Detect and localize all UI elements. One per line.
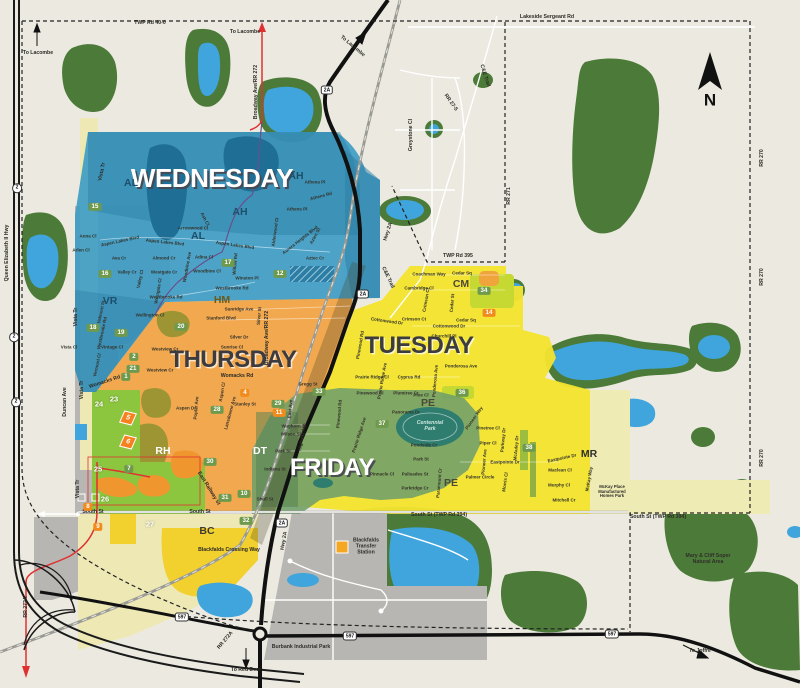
place-label-burbank-industrial-park: Burbank Industrial Park bbox=[272, 645, 331, 651]
badge-33: 33 bbox=[313, 388, 326, 396]
badge-8: 8 bbox=[83, 503, 92, 511]
street-label-sunridge-ave: Sunridge Ave bbox=[225, 306, 254, 311]
area-code-ah: AH bbox=[232, 207, 247, 219]
street-label-cambridge-cl: Cambridge Cl bbox=[404, 285, 433, 290]
street-label-alderwood-cl: Alderwood Cl bbox=[270, 217, 279, 246]
area-code-rh: RH bbox=[155, 446, 170, 458]
road-label-to-lacombe: To Lacombe bbox=[230, 30, 260, 36]
street-label-pine-cl: Pine Cl bbox=[413, 392, 428, 397]
street-label-indiana-st: Indiana St bbox=[264, 466, 286, 471]
road-label-south-st: South St bbox=[189, 510, 210, 516]
road-label-twp-rd-40-0: TWP Rd 40-0 bbox=[134, 21, 166, 27]
street-label-wilson-st: Wilson St bbox=[281, 431, 301, 436]
badge-31: 31 bbox=[219, 494, 232, 502]
badge-34: 34 bbox=[478, 287, 491, 295]
road-label-vista-tr: Vista Tr bbox=[98, 162, 108, 181]
street-label-mitchell-cr: Mitchell Cr bbox=[552, 497, 575, 502]
street-label-aspen-lakes-blvd: Aspen Lakes Blvd bbox=[101, 235, 140, 248]
road-label-hwy-2a: Hwy 2A bbox=[281, 531, 290, 550]
place-label-blackfalds-transfer-station: Blackfalds Transfer Station bbox=[353, 538, 379, 555]
road-label-queen-elizabeth-ii-hwy: Queen Elizabeth II Hwy bbox=[5, 225, 11, 282]
badge-21: 21 bbox=[127, 365, 140, 373]
shield-597: 597 bbox=[605, 630, 619, 639]
street-label-cedar-st: Cedar St bbox=[449, 294, 456, 313]
street-label-prairie-ridge-ave: Prairie Ridge Ave bbox=[376, 362, 387, 399]
marker-5: 5 bbox=[119, 410, 137, 425]
badge-23: 23 bbox=[107, 394, 121, 404]
street-label-arlen-cl: Arlen Cl bbox=[72, 247, 89, 252]
street-label-poplar-ave: Poplar Ave bbox=[192, 396, 199, 420]
street-label-mcauley-dr: McAuley Dr bbox=[512, 435, 519, 460]
shield-2: 2 bbox=[12, 183, 22, 193]
street-label-athens-rd: Athens Rd bbox=[309, 191, 332, 202]
shield-597: 597 bbox=[343, 632, 357, 641]
street-label-parkway-dr: Parkway Dr bbox=[499, 428, 506, 453]
street-label-pioneer-way: Pioneer Way bbox=[464, 406, 484, 431]
road-label-duncan-ave: Duncan Ave bbox=[63, 387, 69, 417]
street-label-winston-pl: Winston Pl bbox=[235, 275, 258, 280]
street-label-valley-cr: Valley Cr bbox=[117, 269, 136, 274]
road-label-vista-tr: Vista Tr bbox=[76, 480, 82, 499]
street-label-almond-cr: Almond Cr bbox=[153, 255, 176, 260]
shield-2: 2 bbox=[9, 332, 19, 342]
road-label-south-st: South St bbox=[82, 510, 103, 516]
street-label-vista-cl: Vista Cl bbox=[61, 344, 77, 349]
area-code-pe: PE bbox=[421, 398, 435, 410]
road-label-to-red-deer: To Red Deer bbox=[231, 668, 261, 674]
road-label-rr-270: RR 270 bbox=[760, 149, 766, 167]
area-code-pe: PE bbox=[444, 478, 458, 490]
area-code-vr: VR bbox=[103, 296, 118, 308]
street-label-park-st: Park St bbox=[413, 456, 429, 461]
street-label-westbrooke-rd: Westbrooke Rd bbox=[96, 316, 108, 349]
badge-16: 16 bbox=[99, 270, 112, 278]
street-label-lansdowne-ave: Lansdowne Ave bbox=[223, 396, 237, 430]
road-label-rr-270: RR 270 bbox=[760, 268, 766, 286]
road-label-rr-27-5: RR 27-5 bbox=[442, 93, 458, 112]
street-label-crimson-ct: Crimson Ct bbox=[402, 316, 426, 321]
street-label-westgate-cl: Westgate Cl bbox=[153, 278, 162, 304]
road-label-to-lacombe: To Lacombe bbox=[339, 35, 366, 59]
street-label-pinetree-cl: Pinetree Cl bbox=[476, 425, 500, 430]
marker-6: 6 bbox=[119, 434, 137, 449]
road-label-vista-tr: Vista Tr bbox=[80, 381, 86, 400]
badge-30: 30 bbox=[204, 458, 217, 466]
street-label-cottonwood-dr: Cottonwood Dr bbox=[371, 316, 404, 326]
street-label-maclean-cl: Maclean Cl bbox=[548, 467, 572, 472]
street-label-westbrooke-rd: Westbrooke Rd bbox=[216, 285, 249, 290]
badge-2: 2 bbox=[129, 353, 138, 361]
street-label-pinewood-rd: Pinewood Rd bbox=[335, 400, 342, 429]
street-label-aurora-heights-blvd: Aurora Heights Blvd bbox=[281, 225, 318, 256]
street-label-vermont-cl: Vermont Cl bbox=[92, 353, 102, 377]
street-label-sunrise-cl: Sunrise Cl bbox=[221, 344, 243, 349]
badge-27: 27 bbox=[143, 519, 157, 529]
area-code-cm: CM bbox=[453, 279, 469, 291]
street-label-aztec-st: Aztec St bbox=[309, 227, 322, 245]
place-label-mckay-place-manufactured-homes-park: McKay Place Manufactured Homes Park bbox=[598, 485, 625, 499]
area-code-al: AL bbox=[124, 178, 138, 190]
street-label-coachman-way: Coachman Way bbox=[412, 271, 445, 276]
badge-11: 11 bbox=[273, 409, 286, 417]
collection-zone-map: WEDNESDAYTHURSDAYTUESDAYFRIDAYALAHAHALVR… bbox=[0, 0, 800, 688]
road-label-east-railway-st: East Railway St bbox=[195, 471, 220, 507]
badge-18: 18 bbox=[87, 324, 100, 332]
badge-12: 12 bbox=[274, 270, 287, 278]
road-label-greystone-cl: Greystone Cl bbox=[409, 119, 415, 151]
street-label-pinewood-rd: Pinewood Rd bbox=[355, 331, 365, 360]
road-label-rr-272a: RR 272A bbox=[217, 631, 235, 651]
zone-title-wednesday: WEDNESDAY bbox=[131, 165, 293, 191]
street-label-stanley-st: Stanley St bbox=[234, 401, 256, 406]
road-label-rr-270: RR 270 bbox=[760, 449, 766, 467]
street-label-cedar-sq: Cedar Sq bbox=[456, 317, 476, 322]
street-label-gregg-st: Gregg St bbox=[298, 381, 317, 386]
badge-37: 37 bbox=[376, 420, 389, 428]
place-label-mary-cliff-soper-natural-area: Mary & Cliff Soper Natural Area bbox=[686, 554, 731, 566]
street-label-churchill-pl: Churchill Pl bbox=[431, 333, 456, 338]
street-label-aspen-dr: Aspen Dr bbox=[176, 405, 196, 410]
street-label-anna-cl: Anna Cl bbox=[79, 233, 96, 238]
shield-2a: 2A bbox=[357, 290, 369, 299]
street-label-vintage-cl: Vintage Cl bbox=[101, 344, 123, 349]
road-label-broadway-ave-rr-272: Broadway Ave/RR 272 bbox=[254, 65, 260, 119]
badge-7: 7 bbox=[124, 465, 133, 473]
road-label-broadway-ave-rr-272: Broadway Ave/RR 272 bbox=[265, 311, 271, 365]
street-label-ash-cl: Ash Cl bbox=[199, 212, 210, 227]
street-label-piper-cl: Piper Cl bbox=[479, 440, 496, 445]
street-label-eastpointe-dr: Eastpointe Dr bbox=[490, 459, 519, 464]
street-label-woodbine-ave: Woodbine Ave bbox=[182, 251, 192, 282]
road-label-rr-272a: RR 272A bbox=[24, 596, 30, 617]
street-label-westview-cr: Westview Cr bbox=[152, 346, 179, 351]
area-code-bc: BC bbox=[199, 526, 214, 538]
street-label-aztec-cr: Aztec Cr bbox=[306, 255, 324, 260]
street-label-silver-dr: Silver Dr bbox=[230, 334, 249, 339]
street-label-east-ave: East Ave bbox=[287, 399, 294, 418]
zone-title-tuesday: TUESDAY bbox=[365, 334, 474, 358]
street-label-pioneer-ave: Pioneer Ave bbox=[480, 449, 487, 475]
street-label-palmer-circle: Palmer Circle bbox=[466, 474, 495, 479]
street-label-murphy-cl: Murphy Cl bbox=[548, 482, 570, 487]
street-label-ponderosa-ave: Ponderosa Ave bbox=[445, 363, 477, 368]
area-code-mr: MR bbox=[581, 449, 597, 461]
street-label-ponderosa-ave: Ponderosa Ave bbox=[431, 365, 439, 398]
street-label-valmont-st: Valmont St bbox=[96, 300, 106, 324]
road-label-vista-tr: Vista Tr bbox=[74, 308, 80, 327]
shield-2: 2 bbox=[11, 397, 21, 407]
street-label-aspen-lakes-blvd: Aspen Lakes Blvd bbox=[215, 240, 254, 250]
road-label-c-e-trail: C&E Trail bbox=[478, 64, 491, 88]
badge-15: 15 bbox=[89, 203, 102, 211]
street-label-adina-cl: Adina Cl bbox=[195, 254, 213, 259]
street-label-stanford-blvd: Stanford Blvd bbox=[206, 315, 236, 320]
badge-1: 1 bbox=[121, 373, 130, 381]
badge-32: 32 bbox=[240, 517, 253, 525]
area-code-hm: HM bbox=[214, 295, 230, 307]
badge-24: 24 bbox=[92, 399, 106, 409]
street-label-park-st: Park St bbox=[275, 448, 291, 453]
badge-29: 29 bbox=[272, 400, 285, 408]
road-label-south-st-twp-rd-394: South St (TWP Rd 394) bbox=[411, 513, 467, 519]
place-label-centennial-park: Centennial Park bbox=[417, 421, 444, 433]
road-label-womacks-rd: Womacks Rd bbox=[89, 375, 122, 391]
street-label-highway-ave: Highway Ave bbox=[297, 423, 307, 451]
street-label-cyprus-rd: Cyprus Rd bbox=[398, 374, 421, 379]
map-labels-layer: WEDNESDAYTHURSDAYTUESDAYFRIDAYALAHAHALVR… bbox=[0, 0, 800, 688]
street-label-parkridge-cr: Parkridge Cr bbox=[401, 485, 428, 490]
shield-2a: 2A bbox=[276, 519, 288, 528]
street-label-athena-pl: Athena Pl bbox=[305, 179, 326, 184]
road-label-hwy-2a: Hwy 2A bbox=[383, 222, 394, 242]
street-label-palisades-st: Palisades St bbox=[402, 471, 429, 476]
street-label-plumtree-cr: Plumtree Cr bbox=[393, 390, 419, 395]
road-label-womacks-rd: Womacks Rd bbox=[221, 374, 253, 380]
street-label-paramount-cr: Paramount Cr bbox=[435, 468, 443, 498]
street-label-prairie-ridge-cl: Prairie Ridge Cl bbox=[355, 374, 389, 379]
street-label-waghorn-st: Waghorn St bbox=[281, 423, 306, 428]
street-label-ava-cr: Ava Cr bbox=[112, 255, 126, 260]
badge-14: 14 bbox=[483, 309, 496, 317]
road-label-to-lacombe: To Lacombe bbox=[23, 51, 53, 57]
street-label-cedar-sq: Cedar Sq bbox=[452, 270, 472, 275]
street-label-morris-cl: Morris Cl bbox=[501, 472, 509, 492]
badge-17: 17 bbox=[222, 259, 235, 267]
place-label-n: N bbox=[704, 90, 716, 109]
street-label-pinewood-cl: Pinewood Cl bbox=[357, 390, 384, 395]
road-label-lakeside-sergeant-rd: Lakeside Sergeant Rd bbox=[520, 15, 574, 21]
shield-597: 597 bbox=[175, 613, 189, 622]
badge-20: 20 bbox=[175, 323, 188, 331]
badge-25: 25 bbox=[91, 464, 105, 474]
road-label-twp-rd-395: TWP Rd 395 bbox=[443, 254, 473, 260]
street-label-wellington-cl: Wellington Cl bbox=[136, 312, 165, 317]
street-label-athens-pl: Athens Pl bbox=[287, 206, 308, 211]
badge-4: 4 bbox=[240, 389, 249, 397]
road-label-c-e-trail: C&E Trail bbox=[379, 266, 394, 289]
street-label-pinnacle-cl: Pinnacle Cl bbox=[370, 471, 394, 476]
street-label-crimson-cl: Crimson Cl bbox=[421, 288, 430, 313]
street-label-valley-cl: Valley Cl bbox=[136, 269, 145, 288]
badge-19: 19 bbox=[115, 329, 128, 337]
street-label-arrowwood-cl: Arrowwood Cl bbox=[178, 225, 209, 230]
street-label-panorama-dr: Panorama Dr bbox=[392, 409, 420, 414]
street-label-westview-cr: Westview Cr bbox=[147, 367, 174, 372]
street-label-westbrooke-rd: Westbrooke Rd bbox=[150, 294, 183, 299]
street-label-aspen-lakes-blvd: Aspen Lakes Blvd bbox=[145, 237, 184, 246]
street-label-mckay-way: McKay Way bbox=[584, 466, 593, 491]
road-label-blackfalds-crossing-way: Blackfalds Crossing Way bbox=[198, 548, 260, 554]
badge-26: 26 bbox=[98, 494, 112, 504]
area-code-ah: AH bbox=[288, 171, 303, 183]
road-label-south-st-twp-rd-394: South St (TWP Rd 394) bbox=[630, 515, 686, 521]
street-label-pondside-cr: Pondside Cr bbox=[411, 442, 438, 447]
street-label-eastpointe-dr: Eastpointe Dr bbox=[547, 452, 577, 463]
street-label-willow-rd: Willow Rd bbox=[232, 253, 239, 275]
street-label-prairie-ridge-ave: Prairie Ridge Ave bbox=[351, 417, 367, 454]
area-code-dt: DT bbox=[253, 446, 267, 458]
road-label-to-joffre: To Joffre bbox=[689, 649, 711, 655]
zone-title-friday: FRIDAY bbox=[290, 456, 374, 480]
shield-2a: 2A bbox=[321, 86, 333, 95]
street-label-westgate-cr: Westgate Cr bbox=[151, 269, 177, 274]
area-code-al: AL bbox=[191, 231, 205, 243]
street-label-aspen-cl: Aspen Cl bbox=[218, 382, 226, 402]
road-label-rr-271: RR 271 bbox=[507, 187, 513, 205]
street-label-shull-st: Shull St bbox=[257, 496, 274, 501]
street-label-cottonwood-dr: Cottonwood Dr bbox=[433, 323, 466, 328]
badge-36: 36 bbox=[456, 389, 469, 397]
badge-10: 10 bbox=[238, 490, 251, 498]
zone-title-thursday: THURSDAY bbox=[169, 348, 296, 372]
street-label-woodbine-cl: Woodbine Cl bbox=[193, 268, 220, 273]
badge-28: 28 bbox=[211, 406, 224, 414]
badge-38: 38 bbox=[523, 444, 536, 452]
badge-9: 9 bbox=[93, 523, 102, 531]
street-label-silver-st: Silver St bbox=[256, 307, 263, 325]
